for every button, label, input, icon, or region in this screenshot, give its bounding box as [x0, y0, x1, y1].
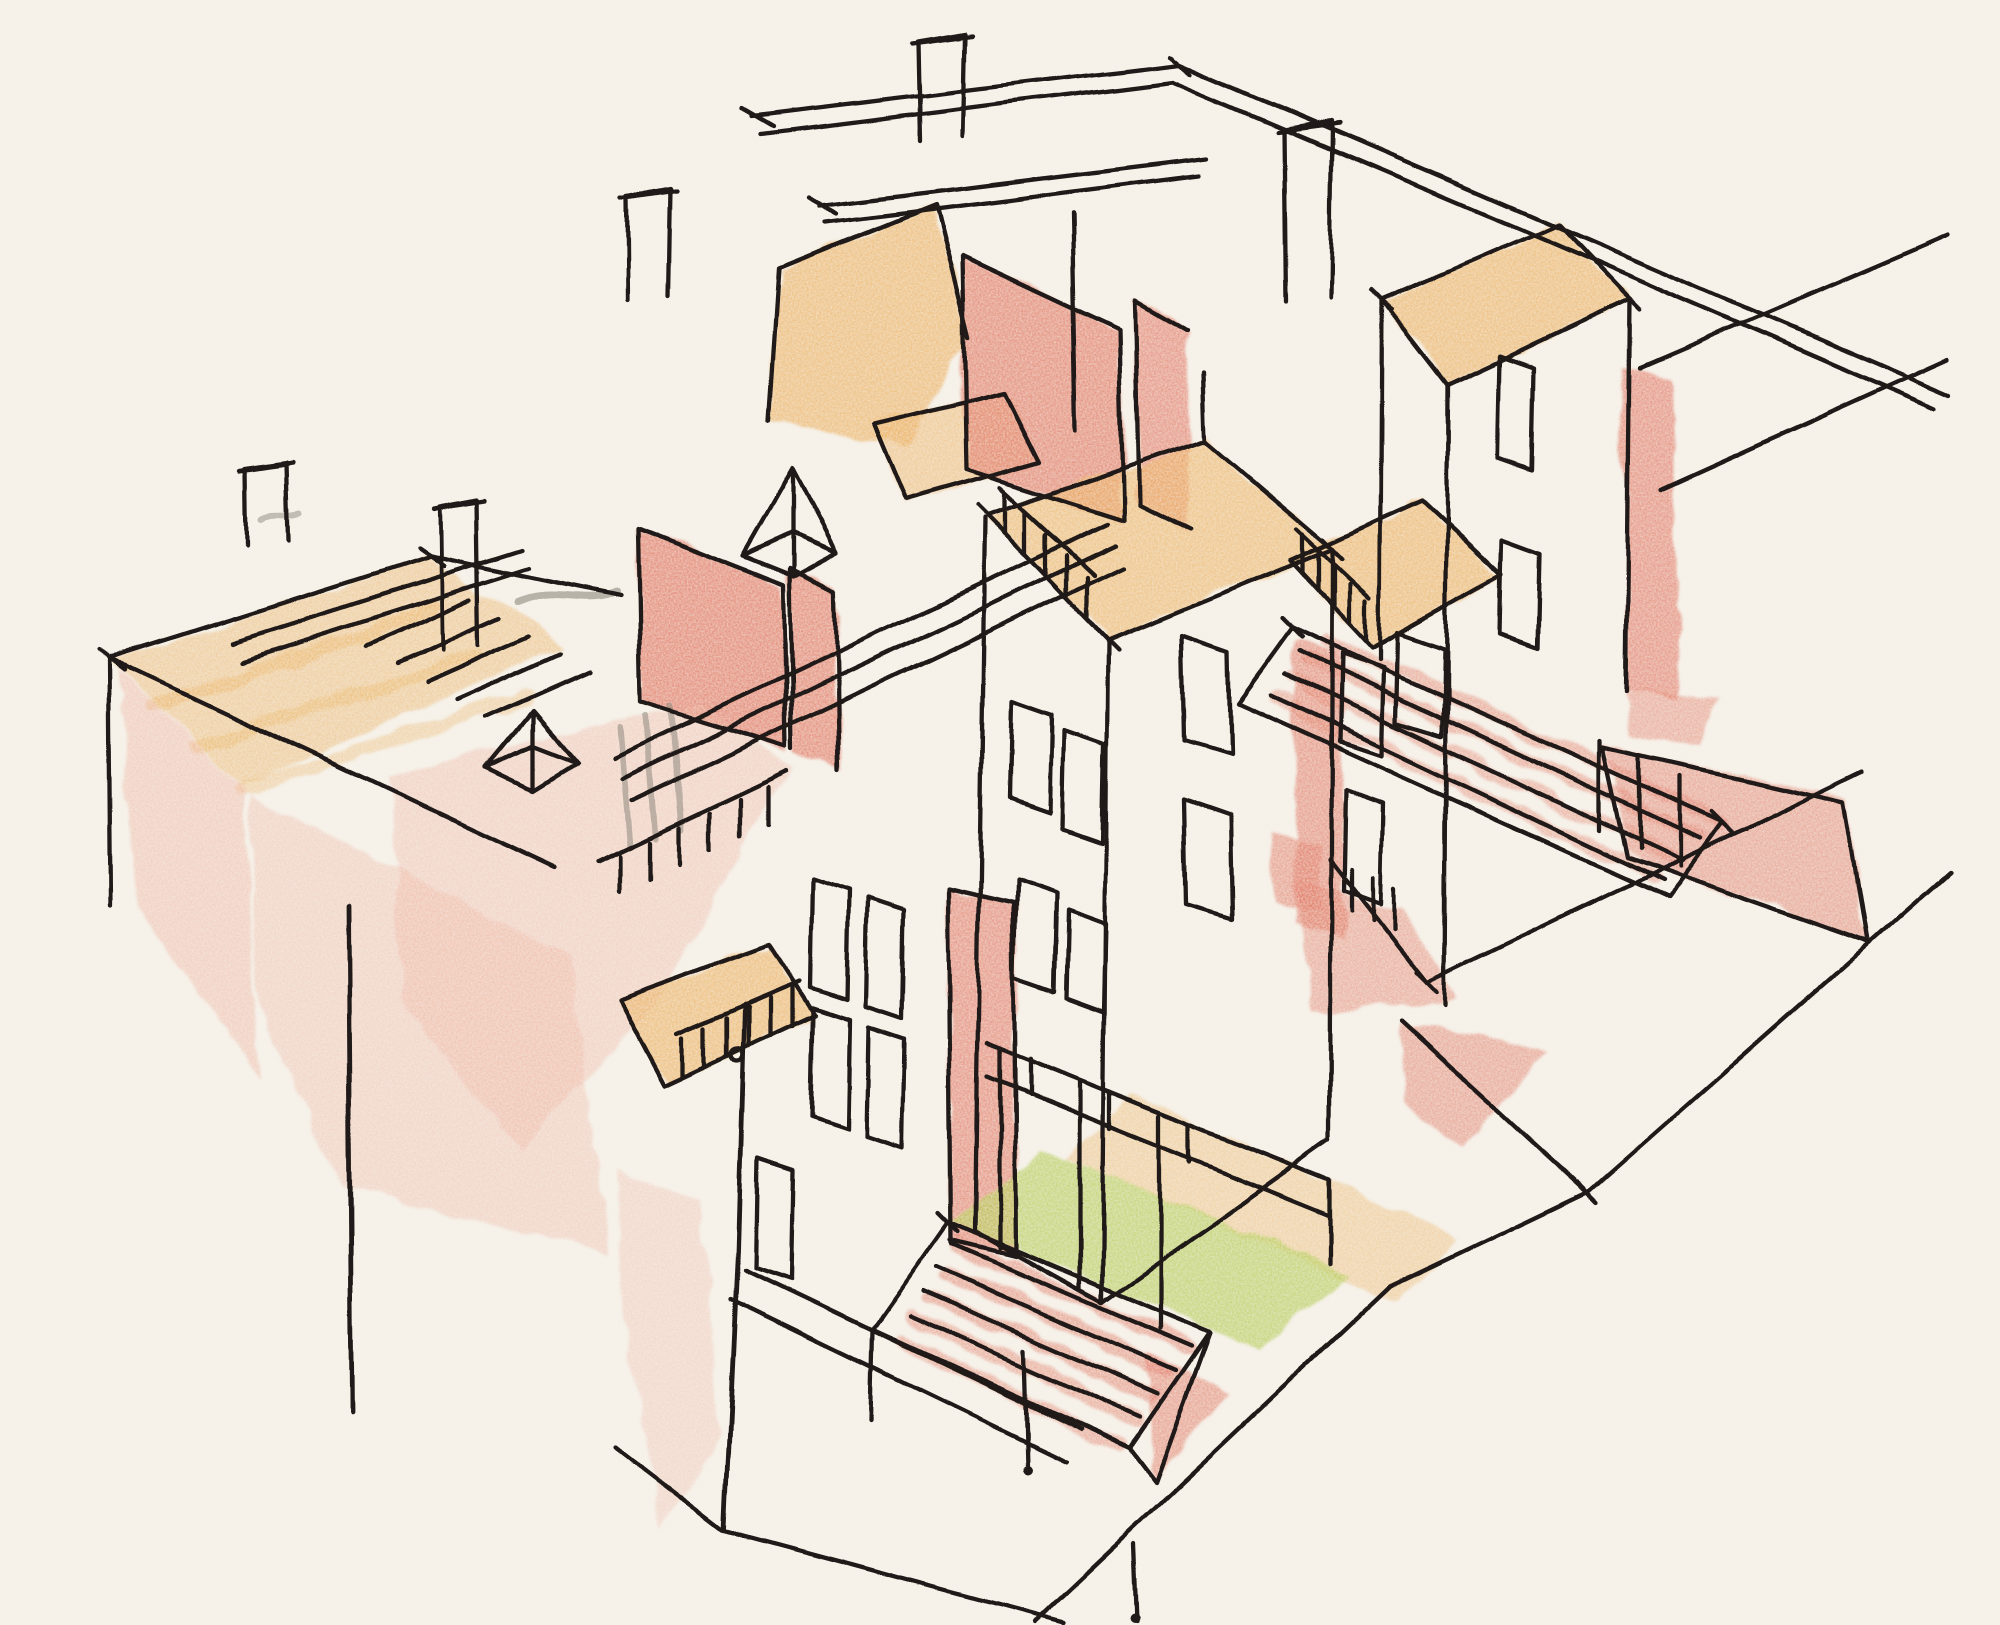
pencil-red-under-balcony	[1270, 830, 1324, 916]
sketch-canvas	[0, 0, 2000, 1625]
axonometric-housing-sketch	[0, 0, 2000, 1625]
tall-corner-1	[1380, 300, 1382, 660]
finial-dot-3	[1130, 1615, 1140, 1625]
finial-dot-2	[1022, 1465, 1032, 1475]
pole-center-roof	[1203, 372, 1205, 440]
wall-left-corner	[108, 658, 110, 906]
house-center-corner-3	[1330, 548, 1332, 1140]
